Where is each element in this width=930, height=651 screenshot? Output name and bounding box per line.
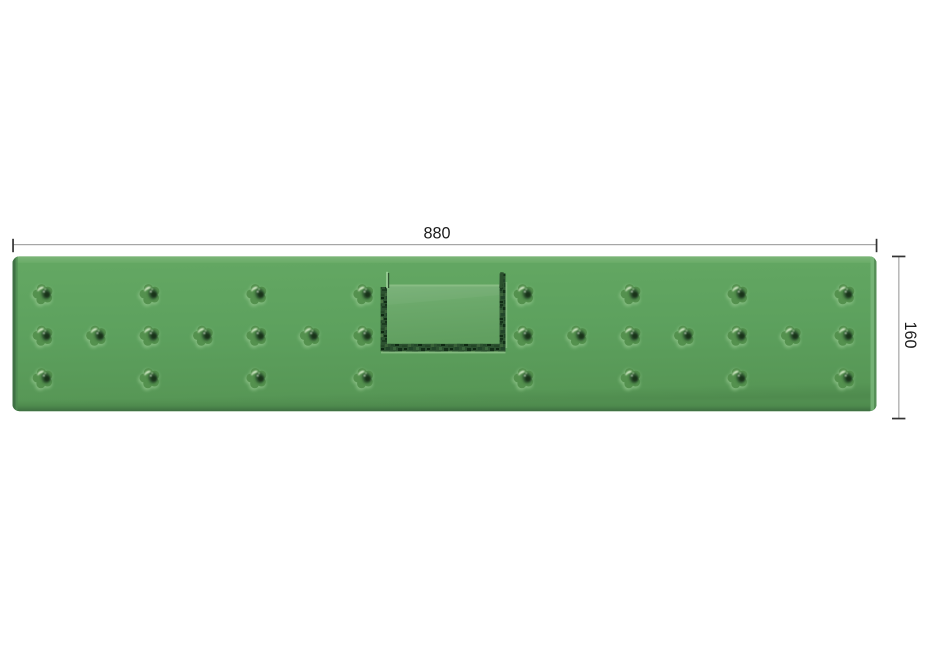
svg-text:160: 160 <box>901 321 919 348</box>
svg-text:880: 880 <box>423 225 450 243</box>
